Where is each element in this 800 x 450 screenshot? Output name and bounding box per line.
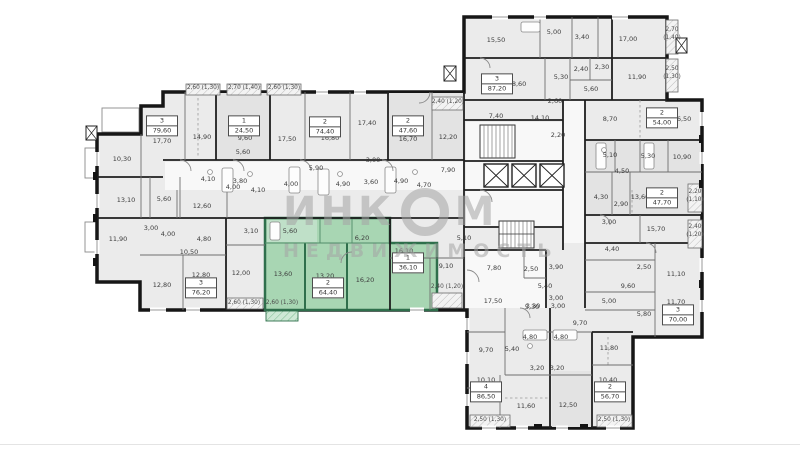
balcony-area-label: 2,40 <box>689 225 702 231</box>
balcony-area-label: 2,40 (1,20) <box>431 285 463 291</box>
room-area-label: 4,00 <box>226 184 240 191</box>
room-area-label: 3,90 <box>549 264 563 271</box>
room-area-label: 2,60 <box>548 98 562 105</box>
room-area-label: 3,20 <box>530 365 544 372</box>
room-area-label: 13,10 <box>117 197 136 204</box>
room-area-label: 3,00 <box>366 157 380 164</box>
room-area-label: 17,50 <box>278 136 297 143</box>
balcony-area-label: 2,40 (1,20) <box>432 100 464 106</box>
room-area-label: 5,30 <box>641 153 655 160</box>
room-area-label: 5,00 <box>547 29 561 36</box>
apartment-rooms-count: 1 <box>393 253 423 263</box>
room-area-label: 5,10 <box>457 235 471 242</box>
room-area-label: 15,50 <box>487 37 506 44</box>
room-area-label: 3,00 <box>602 219 616 226</box>
room-area-label: 10,90 <box>673 154 692 161</box>
balcony-area-label: 2,50 (1,30) <box>598 418 630 424</box>
apartment-badge[interactable]: 370,00 <box>662 304 694 325</box>
room-area-label: 2,40 <box>574 66 588 73</box>
room-area-label: 6,20 <box>355 235 369 242</box>
room-area-label: 4,30 <box>594 194 608 201</box>
apartment-rooms-count: 3 <box>147 116 177 126</box>
balcony-area-label: 2,70 (1,40) <box>228 86 260 92</box>
apartment-badge[interactable]: 379,60 <box>146 115 178 136</box>
balcony-area-label: 2,50 (1,30) <box>474 418 506 424</box>
apartment-total-area: 56,70 <box>595 393 625 402</box>
room-labels-layer: 17,7014,9010,309,6017,5016,8017,4016,701… <box>0 0 800 450</box>
apartment-badge-selected[interactable]: 264,40 <box>312 277 344 298</box>
apartment-rooms-count: 2 <box>647 108 677 118</box>
room-area-label: 2,90 <box>614 201 628 208</box>
room-area-label: 11,90 <box>109 236 128 243</box>
room-area-label: 12,20 <box>439 134 458 141</box>
room-area-label: 5,00 <box>602 298 616 305</box>
room-area-label: 4,40 <box>605 246 619 253</box>
room-area-label: 2,50 <box>524 266 538 273</box>
room-area-label: 4,00 <box>284 181 298 188</box>
room-area-label: 10,30 <box>113 156 132 163</box>
room-area-label: 2,20 <box>551 132 565 139</box>
apartment-badge[interactable]: 136,10 <box>392 252 424 273</box>
apartment-badge[interactable]: 376,20 <box>185 277 217 298</box>
room-area-label: 7,80 <box>487 265 501 272</box>
room-area-label: 4,90 <box>336 181 350 188</box>
room-area-label: 11,90 <box>628 74 647 81</box>
room-area-label: 5,60 <box>236 149 250 156</box>
apartment-rooms-count: 4 <box>471 382 501 392</box>
balcony-area-label: 2,60 (1,30) <box>268 86 300 92</box>
apartment-badge[interactable]: 247,60 <box>392 115 424 136</box>
apartment-rooms-count: 3 <box>482 74 512 84</box>
room-area-label: 14,10 <box>531 115 550 122</box>
room-area-label: 4,70 <box>417 182 431 189</box>
balcony-area-label: 2,60 (1,30) <box>187 86 219 92</box>
room-area-label: 7,90 <box>441 167 455 174</box>
room-area-label: 11,60 <box>517 403 536 410</box>
balcony-area-label: (1,40) <box>663 36 680 42</box>
balcony-area-label: (1,30) <box>663 75 680 81</box>
room-area-label: 3,00 <box>551 303 565 310</box>
room-area-label: 7,40 <box>489 113 503 120</box>
room-area-label: 4,00 <box>161 231 175 238</box>
room-area-label: 12,50 <box>559 402 578 409</box>
room-area-label: 9,70 <box>573 320 587 327</box>
room-area-label: 4,80 <box>197 236 211 243</box>
room-area-label: 3,10 <box>244 228 258 235</box>
room-area-label: 5,40 <box>505 346 519 353</box>
apartment-badge[interactable]: 124,50 <box>228 115 260 136</box>
apartment-rooms-count: 2 <box>310 117 340 127</box>
room-area-label: 12,60 <box>193 203 212 210</box>
room-area-label: 8,70 <box>603 116 617 123</box>
apartment-total-area: 87,20 <box>482 85 512 94</box>
room-area-label: 15,70 <box>647 226 666 233</box>
room-area-label: 2,50 <box>637 264 651 271</box>
balcony-area-label: (1,20) <box>686 233 703 239</box>
apartment-total-area: 47,60 <box>393 127 423 136</box>
room-area-label: 5,10 <box>603 152 617 159</box>
apartment-rooms-count: 3 <box>186 278 216 288</box>
apartment-total-area: 24,50 <box>229 127 259 136</box>
apartment-badge[interactable]: 256,70 <box>594 381 626 402</box>
room-area-label: 17,70 <box>153 138 172 145</box>
apartment-total-area: 74,40 <box>310 128 340 137</box>
room-area-label: 12,80 <box>153 282 172 289</box>
room-area-label: 10,50 <box>180 249 199 256</box>
room-area-label: 16,20 <box>356 277 375 284</box>
balcony-area-label: (1,10) <box>686 198 703 204</box>
room-area-label: 5,60 <box>584 86 598 93</box>
apartment-total-area: 54,00 <box>647 119 677 128</box>
apartment-badge[interactable]: 247,70 <box>646 187 678 208</box>
apartment-total-area: 70,00 <box>663 316 693 325</box>
room-area-label: 4,90 <box>394 178 408 185</box>
apartment-badge[interactable]: 486,50 <box>470 381 502 402</box>
room-area-label: 4,50 <box>615 168 629 175</box>
room-area-label: 5,60 <box>283 228 297 235</box>
room-area-label: 5,40 <box>538 283 552 290</box>
room-area-label: 5,80 <box>637 311 651 318</box>
apartment-rooms-count: 2 <box>393 116 423 126</box>
room-area-label: 9,70 <box>479 347 493 354</box>
balcony-area-label: 2,60 (1,30) <box>266 301 298 307</box>
room-area-label: 3,00 <box>549 295 563 302</box>
apartment-badge[interactable]: 387,20 <box>481 73 513 94</box>
room-area-label: 5,30 <box>554 74 568 81</box>
apartment-total-area: 36,10 <box>393 264 423 273</box>
room-area-label: 2,30 <box>595 64 609 71</box>
room-area-label: 9,10 <box>439 263 453 270</box>
room-area-label: 3,40 <box>575 34 589 41</box>
room-area-label: 17,00 <box>619 36 638 43</box>
room-area-label: 5,30 <box>525 304 539 311</box>
apartment-rooms-count: 3 <box>663 305 693 315</box>
room-area-label: 17,40 <box>358 120 377 127</box>
room-area-label: 3,00 <box>144 225 158 232</box>
floor-plan-canvas: 17,7014,9010,309,6017,5016,8017,4016,701… <box>0 0 800 450</box>
room-area-label: 4,10 <box>201 176 215 183</box>
room-area-label: 4,80 <box>554 334 568 341</box>
room-area-label: 9,60 <box>621 283 635 290</box>
room-area-label: 16,70 <box>399 136 418 143</box>
room-area-label: 14,90 <box>193 134 212 141</box>
page-bottom-rule <box>0 444 800 445</box>
apartment-rooms-count: 2 <box>313 278 343 288</box>
room-area-label: 13,60 <box>274 271 293 278</box>
room-area-label: 17,50 <box>484 298 503 305</box>
apartment-total-area: 47,70 <box>647 199 677 208</box>
apartment-total-area: 64,40 <box>313 289 343 298</box>
apartment-rooms-count: 1 <box>229 116 259 126</box>
room-area-label: 4,10 <box>251 187 265 194</box>
balcony-area-label: 2,20 <box>689 190 702 196</box>
balcony-area-label: 2,60 (1,30) <box>228 301 260 307</box>
room-area-label: 5,90 <box>309 165 323 172</box>
apartment-badge[interactable]: 254,00 <box>646 107 678 128</box>
apartment-total-area: 79,60 <box>147 127 177 136</box>
balcony-area-label: 2,70 <box>666 28 679 34</box>
balcony-area-label: 2,50 <box>666 67 679 73</box>
room-area-label: 4,80 <box>523 334 537 341</box>
room-area-label: 3,60 <box>364 179 378 186</box>
apartment-rooms-count: 2 <box>647 188 677 198</box>
room-area-label: 11,80 <box>600 345 619 352</box>
room-area-label: 11,10 <box>667 271 686 278</box>
room-area-label: 5,60 <box>157 196 171 203</box>
room-area-label: 12,00 <box>232 270 251 277</box>
apartment-badge[interactable]: 274,40 <box>309 116 341 137</box>
apartment-rooms-count: 2 <box>595 382 625 392</box>
apartment-total-area: 86,50 <box>471 393 501 402</box>
room-area-label: 3,20 <box>550 365 564 372</box>
apartment-total-area: 76,20 <box>186 289 216 298</box>
